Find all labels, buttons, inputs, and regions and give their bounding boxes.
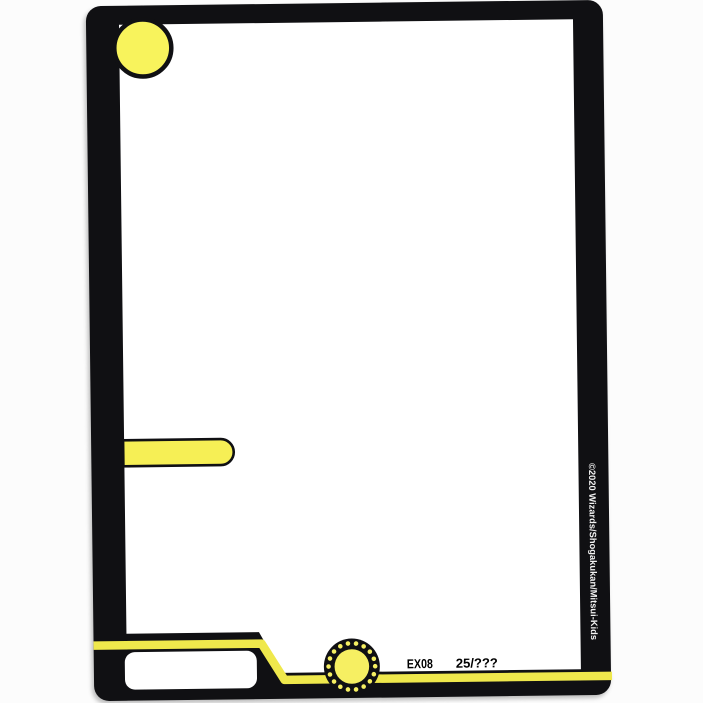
collector-number-text: 25/??? [456, 655, 498, 671]
cost-circle-icon [114, 19, 172, 77]
card-art-area [119, 19, 581, 674]
card-body: EX08 25/??? ©2020 Wizards/Shogakukan/Mit… [86, 0, 612, 701]
card-photo: EX08 25/??? ©2020 Wizards/Shogakukan/Mit… [0, 0, 703, 703]
set-code-text: EX08 [407, 656, 433, 671]
name-box [125, 651, 257, 690]
race-bar [123, 439, 234, 466]
trading-card: EX08 25/??? ©2020 Wizards/Shogakukan/Mit… [0, 0, 703, 703]
